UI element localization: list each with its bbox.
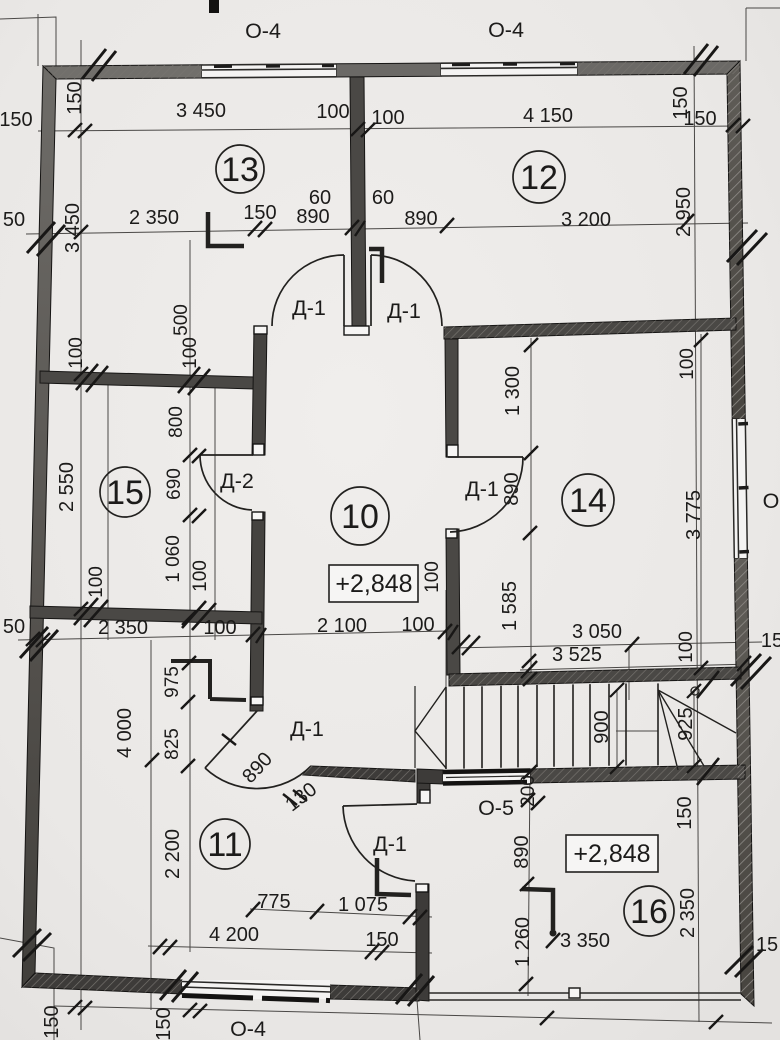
- svg-text:3 525: 3 525: [552, 644, 602, 666]
- svg-text:690: 690: [164, 468, 185, 500]
- svg-text:2 950: 2 950: [673, 187, 695, 237]
- svg-text:150: 150: [41, 1005, 63, 1038]
- svg-text:2 350: 2 350: [129, 207, 179, 229]
- svg-text:150: 150: [674, 796, 696, 829]
- svg-text:2 550: 2 550: [56, 462, 78, 512]
- svg-text:Д-1: Д-1: [387, 299, 421, 323]
- svg-text:100: 100: [371, 107, 404, 129]
- svg-text:975: 975: [162, 666, 183, 698]
- svg-text:3 350: 3 350: [560, 930, 610, 952]
- svg-text:50: 50: [3, 209, 25, 231]
- svg-text:1 585: 1 585: [499, 581, 521, 631]
- svg-text:16: 16: [630, 893, 668, 931]
- svg-text:13: 13: [221, 151, 259, 189]
- svg-text:Д-2: Д-2: [220, 469, 254, 493]
- svg-text:4 150: 4 150: [523, 105, 573, 127]
- svg-text:4 200: 4 200: [209, 924, 259, 946]
- svg-text:14: 14: [569, 482, 607, 520]
- svg-text:50: 50: [3, 616, 25, 638]
- svg-text:О-4: О-4: [245, 19, 281, 43]
- svg-text:100: 100: [677, 348, 698, 380]
- svg-text:200: 200: [518, 775, 539, 807]
- svg-text:2 200: 2 200: [162, 829, 184, 879]
- svg-text:3 200: 3 200: [561, 209, 611, 231]
- svg-text:100: 100: [190, 560, 211, 592]
- svg-text:890: 890: [404, 208, 437, 230]
- svg-text:10: 10: [341, 498, 379, 536]
- svg-text:3 450: 3 450: [62, 203, 84, 253]
- svg-text:150: 150: [243, 202, 276, 224]
- svg-text:100: 100: [203, 617, 236, 639]
- svg-text:2 350: 2 350: [98, 617, 148, 639]
- svg-text:Д-1: Д-1: [292, 296, 326, 320]
- svg-text:15: 15: [106, 474, 144, 512]
- svg-text:1 260: 1 260: [512, 917, 534, 967]
- svg-text:100: 100: [180, 337, 201, 369]
- svg-text:100: 100: [422, 561, 443, 593]
- svg-text:О: О: [763, 489, 780, 513]
- svg-text:60: 60: [309, 187, 331, 209]
- svg-text:Д-1: Д-1: [373, 832, 407, 856]
- svg-text:150: 150: [365, 929, 398, 951]
- svg-text:775: 775: [257, 891, 290, 913]
- svg-text:12: 12: [520, 159, 558, 197]
- svg-text:100: 100: [316, 101, 349, 123]
- svg-text:60: 60: [372, 187, 394, 209]
- svg-text:150: 150: [0, 109, 33, 131]
- svg-text:15: 15: [756, 934, 778, 956]
- svg-text:3 050: 3 050: [572, 621, 622, 643]
- svg-text:925: 925: [675, 707, 697, 740]
- svg-text:15: 15: [761, 630, 780, 652]
- svg-text:+2,848: +2,848: [573, 840, 650, 868]
- svg-text:2 350: 2 350: [677, 888, 699, 938]
- svg-text:О-4: О-4: [488, 18, 524, 42]
- svg-text:2 100: 2 100: [317, 615, 367, 637]
- svg-text:100: 100: [401, 614, 434, 636]
- svg-text:3 775: 3 775: [683, 490, 705, 540]
- svg-text:890: 890: [511, 835, 533, 868]
- svg-text:4 000: 4 000: [114, 708, 136, 758]
- svg-text:1 075: 1 075: [338, 894, 388, 916]
- svg-text:1 060: 1 060: [163, 535, 184, 583]
- svg-text:150: 150: [670, 86, 692, 119]
- svg-text:100: 100: [86, 566, 107, 598]
- svg-text:100: 100: [676, 631, 697, 663]
- svg-text:150: 150: [64, 81, 86, 114]
- svg-text:890: 890: [501, 472, 523, 505]
- svg-text:825: 825: [162, 728, 183, 760]
- svg-text:1 300: 1 300: [502, 366, 524, 416]
- svg-text:+2,848: +2,848: [335, 570, 412, 598]
- svg-text:900: 900: [591, 710, 613, 743]
- svg-text:800: 800: [166, 406, 187, 438]
- svg-text:Д-1: Д-1: [290, 717, 324, 741]
- svg-text:100: 100: [66, 337, 87, 369]
- svg-text:890: 890: [296, 206, 329, 228]
- svg-text:О-4: О-4: [230, 1017, 266, 1040]
- svg-text:150: 150: [153, 1007, 175, 1040]
- svg-text:500: 500: [171, 304, 192, 336]
- svg-text:Д-1: Д-1: [465, 477, 499, 501]
- svg-text:О-5: О-5: [478, 796, 514, 820]
- svg-text:11: 11: [207, 826, 242, 864]
- svg-text:3 450: 3 450: [176, 100, 226, 122]
